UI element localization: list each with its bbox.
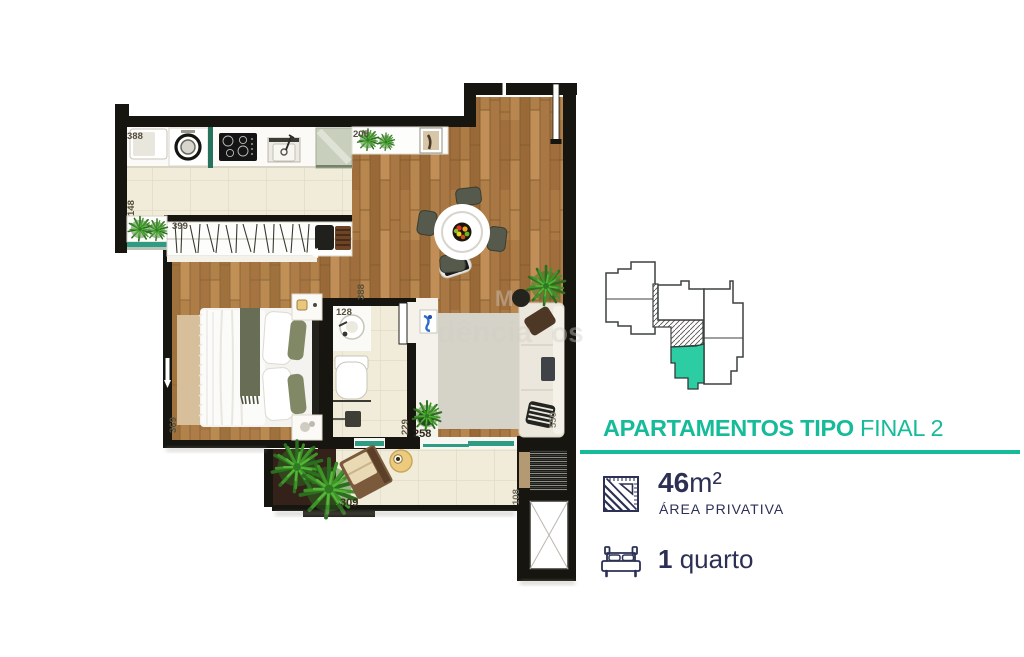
svg-text:46m²: 46m² — [658, 467, 722, 498]
svg-text:M: M — [495, 286, 513, 311]
svg-text:dência: dência — [437, 316, 532, 349]
svg-text:369: 369 — [168, 417, 179, 433]
svg-text:128: 128 — [336, 307, 352, 318]
svg-text:1 quarto: 1 quarto — [658, 544, 753, 574]
svg-text:os: os — [551, 317, 584, 348]
svg-text:550: 550 — [548, 412, 559, 428]
svg-text:399: 399 — [172, 221, 188, 232]
svg-text:309: 309 — [340, 497, 358, 509]
svg-text:388: 388 — [356, 284, 367, 300]
svg-text:388: 388 — [127, 131, 143, 142]
svg-text:229: 229 — [400, 419, 411, 435]
svg-text:ÁREA PRIVATIVA: ÁREA PRIVATIVA — [659, 501, 784, 517]
svg-text:205: 205 — [353, 129, 370, 140]
svg-text:258: 258 — [413, 428, 431, 440]
svg-text:148: 148 — [126, 200, 137, 216]
svg-text:APARTAMENTOS TIPO FINAL 2: APARTAMENTOS TIPO FINAL 2 — [603, 415, 943, 441]
svg-text:108: 108 — [511, 489, 522, 505]
